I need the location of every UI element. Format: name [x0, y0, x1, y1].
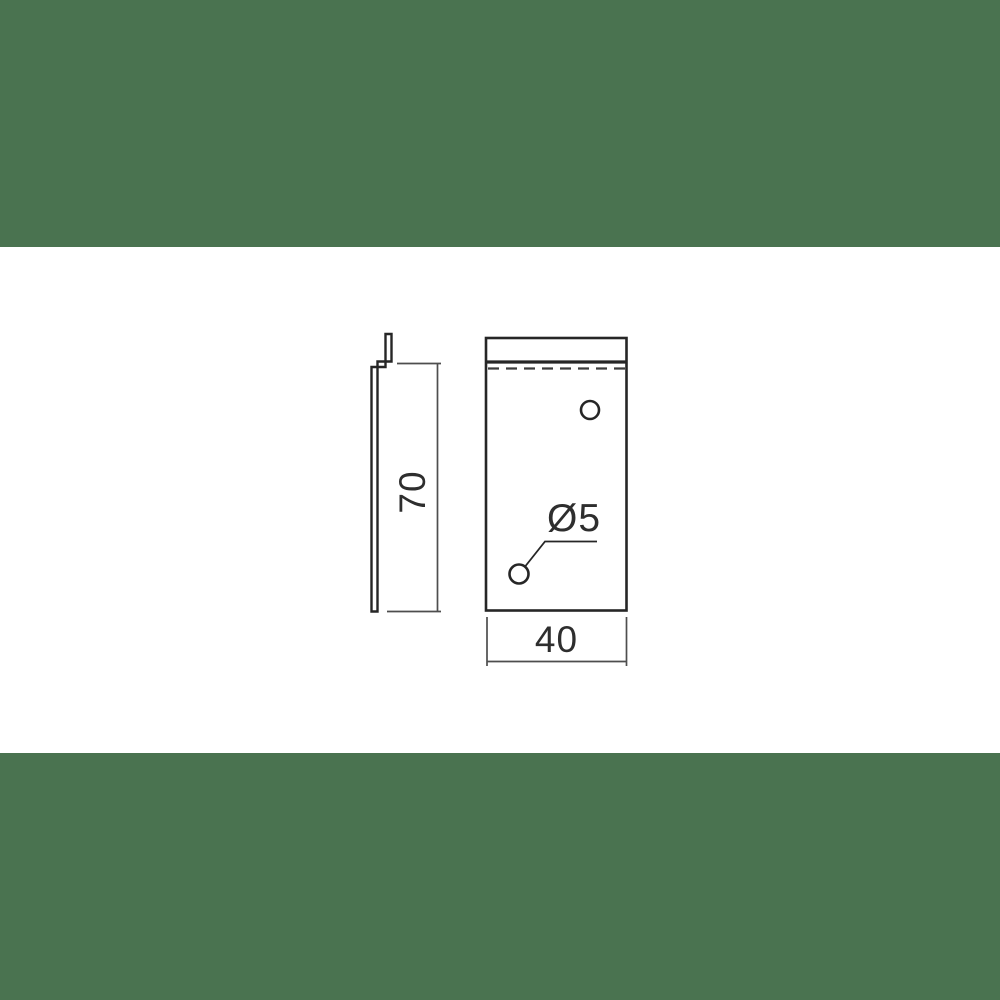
side-view	[372, 334, 392, 612]
page: 70 Ø5 40	[0, 0, 1000, 1000]
hole-bottom-left	[510, 565, 529, 584]
diameter-callout: Ø5	[526, 497, 602, 566]
leader-line	[526, 542, 598, 567]
plate-outline	[486, 338, 627, 611]
diameter-label: Ø5	[547, 497, 601, 540]
width-dimension-label: 40	[535, 619, 578, 660]
height-dimension: 70	[387, 364, 441, 612]
height-dimension-label: 70	[392, 470, 433, 513]
front-view	[486, 338, 627, 611]
width-dimension: 40	[487, 617, 627, 666]
side-profile-outline	[372, 334, 392, 612]
hole-top-right	[581, 401, 599, 419]
technical-drawing: 70 Ø5 40	[0, 0, 1000, 1000]
